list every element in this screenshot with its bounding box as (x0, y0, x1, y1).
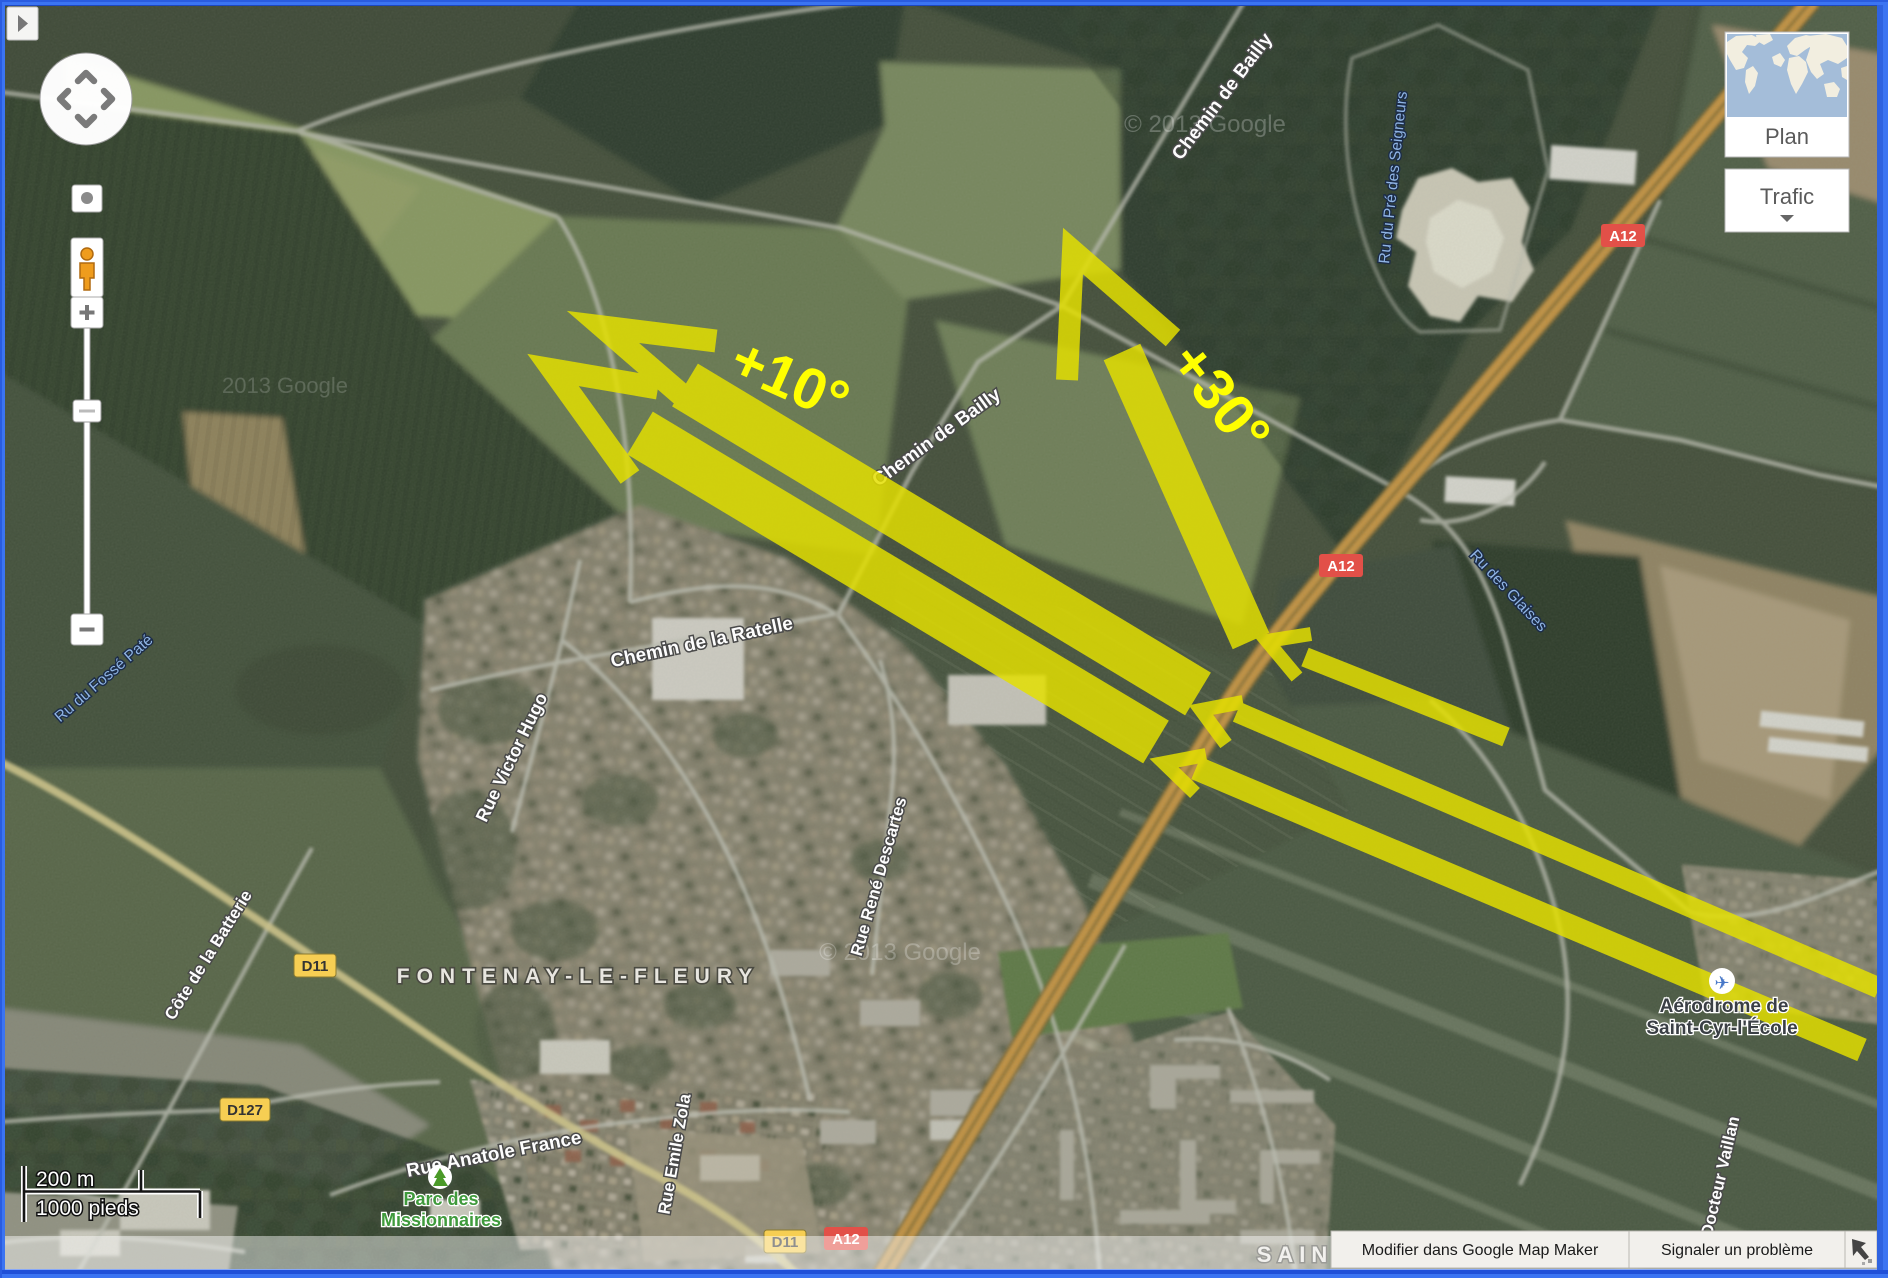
svg-text:2013 Google: 2013 Google (222, 373, 348, 398)
svg-text:Saint-Cyr-l'École: Saint-Cyr-l'École (1646, 1017, 1797, 1039)
svg-text:Plan: Plan (1765, 124, 1809, 149)
svg-text:Modifier dans Google Map Maker: Modifier dans Google Map Maker (1362, 1242, 1599, 1259)
svg-text:A12: A12 (1609, 228, 1637, 245)
svg-text:✈: ✈ (1714, 973, 1729, 993)
svg-text:200 m: 200 m (36, 1168, 94, 1191)
svg-text:Parc des: Parc des (403, 1189, 478, 1209)
svg-text:FONTENAY-LE-FLEURY: FONTENAY-LE-FLEURY (397, 965, 759, 988)
svg-text:© 2013 Google: © 2013 Google (1124, 111, 1286, 138)
svg-text:Aérodrome de: Aérodrome de (1660, 996, 1789, 1017)
svg-text:D11: D11 (302, 958, 329, 975)
svg-text:Missionnaires: Missionnaires (381, 1210, 501, 1230)
svg-text:A12: A12 (1327, 558, 1355, 575)
svg-text:D127: D127 (227, 1102, 263, 1119)
svg-text:Trafic: Trafic (1760, 184, 1814, 209)
svg-text:1000 pieds: 1000 pieds (36, 1197, 139, 1220)
svg-text:Signaler un problème: Signaler un problème (1661, 1242, 1813, 1259)
svg-text:© 2013 Google: © 2013 Google (819, 939, 981, 966)
